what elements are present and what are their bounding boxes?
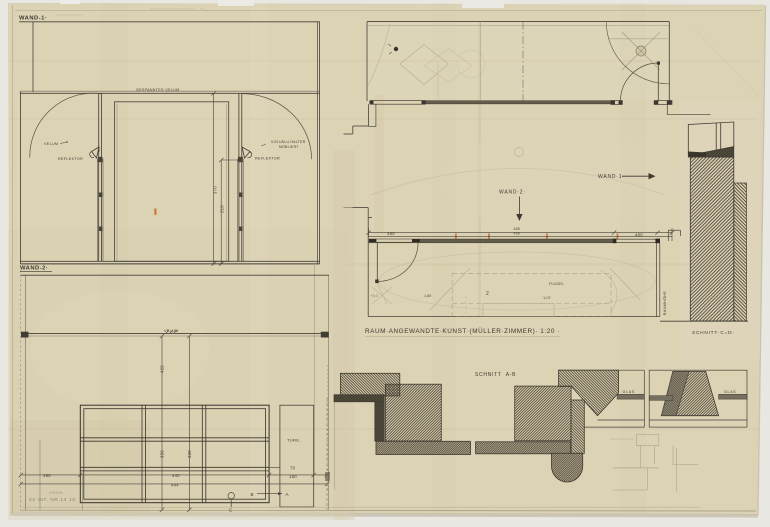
svg-text:B: B: [251, 492, 254, 497]
svg-text:V.ELUM-U.HALTER: V.ELUM-U.HALTER: [271, 140, 306, 144]
svg-text:70: 70: [290, 465, 296, 470]
svg-text:180: 180: [289, 474, 297, 479]
svg-text:24 INT. NR.14 13: 24 INT. NR.14 13: [29, 497, 75, 503]
svg-text:REFLEKTOR: REFLEKTOR: [58, 157, 83, 161]
svg-text:2: 2: [486, 291, 489, 297]
svg-text:210: 210: [220, 205, 225, 213]
svg-text:GLAS: GLAS: [724, 390, 736, 394]
svg-text:1,80: 1,80: [424, 294, 431, 298]
svg-text:RAUMHÖHE: RAUMHÖHE: [663, 291, 667, 316]
svg-text:480: 480: [387, 231, 395, 236]
svg-text:VELUM: VELUM: [44, 142, 58, 146]
svg-text:REFLEKTOR: REFLEKTOR: [255, 157, 280, 161]
svg-text:SCHNITT·C=D·: SCHNITT·C=D·: [692, 330, 735, 336]
svg-text:1,07: 1,07: [543, 295, 552, 300]
svg-text:WAND-2·: WAND-2·: [20, 266, 48, 272]
svg-text:RAUM·ANGEWANDTE·KUNST·(MÜLLER·: RAUM·ANGEWANDTE·KUNST·(MÜLLER·ZIMMER)· 1…: [365, 327, 560, 335]
svg-text:450: 450: [514, 232, 521, 236]
svg-text:GESPANNTES·VELUM: GESPANNTES·VELUM: [136, 88, 179, 92]
svg-text:A: A: [286, 492, 289, 497]
svg-text:450: 450: [514, 227, 521, 231]
svg-text:.,ehem.: .,ehem.: [46, 490, 65, 495]
svg-text:WAND·1·: WAND·1·: [598, 174, 625, 180]
svg-text:TÜRE.: TÜRE.: [287, 438, 301, 443]
svg-text:+5,0: +5,0: [370, 293, 379, 298]
svg-text:WAND-1·: WAND-1·: [19, 16, 47, 22]
svg-text:GLAS: GLAS: [623, 390, 635, 394]
svg-text:WAND·2·: WAND·2·: [499, 190, 526, 196]
svg-text:350: 350: [159, 450, 164, 458]
svg-text:440: 440: [172, 473, 180, 478]
svg-text:444: 444: [171, 482, 179, 487]
svg-text:VELUM: VELUM: [164, 329, 178, 333]
svg-text:425: 425: [159, 365, 164, 373]
svg-text:330: 330: [187, 450, 192, 458]
svg-text:370: 370: [213, 186, 218, 194]
svg-text:MÖBLIERT: MÖBLIERT: [279, 145, 299, 149]
svg-text:SCHNITT A-B: SCHNITT A-B: [475, 372, 516, 378]
svg-text:FLÜGEL: FLÜGEL: [549, 282, 564, 286]
svg-text:180: 180: [43, 473, 51, 478]
